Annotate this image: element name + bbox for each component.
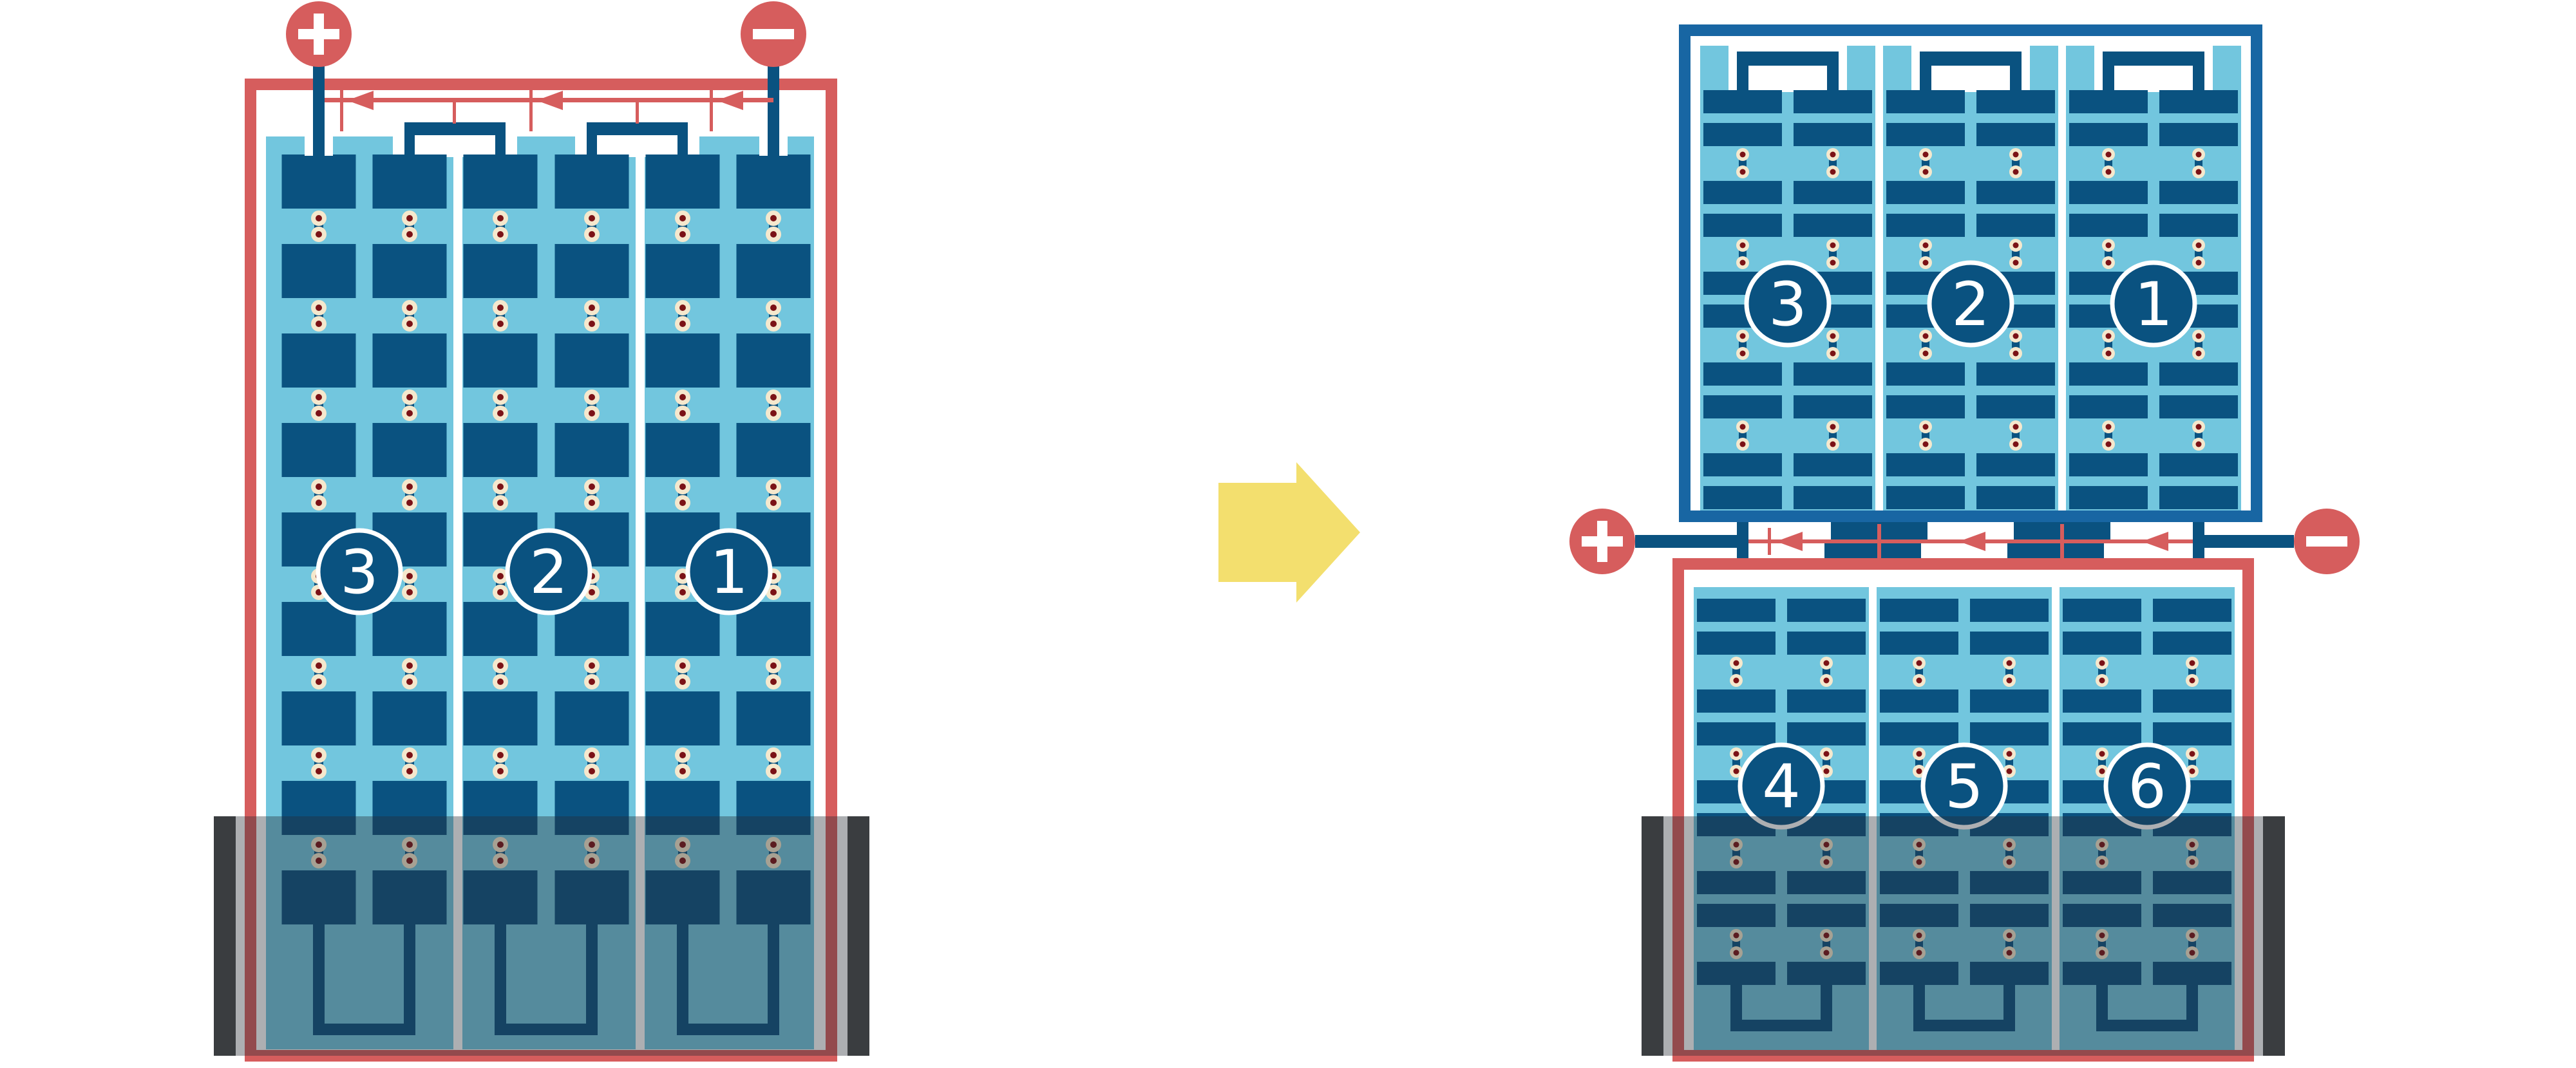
bottom-loop <box>2103 52 2204 66</box>
plate <box>1976 214 2055 237</box>
plate <box>464 423 538 477</box>
plate <box>1703 90 1782 113</box>
plate <box>373 691 447 745</box>
cell-number-badge: 6 <box>2106 745 2188 827</box>
plate <box>1970 599 2049 622</box>
plate <box>1880 722 1958 745</box>
bottom-loop <box>1920 52 2022 66</box>
plate <box>282 333 356 388</box>
plate <box>1886 123 1965 146</box>
plate <box>1703 395 1782 418</box>
plate <box>1976 90 2055 113</box>
tray-overlay <box>1642 816 2285 1056</box>
plate <box>1886 214 1965 237</box>
plate <box>282 244 356 298</box>
current-flow-arrow <box>1748 524 2193 559</box>
plate <box>2063 599 2141 622</box>
plate <box>2063 632 2141 655</box>
plate <box>737 155 811 209</box>
flow-tick <box>2060 524 2064 559</box>
battery-rewiring-diagram: 321321456 <box>0 0 2576 1068</box>
plate <box>282 155 356 209</box>
plate <box>1886 90 1965 113</box>
tray-glass <box>1642 816 2285 1056</box>
cell-number-badge: 1 <box>688 530 770 613</box>
plate <box>2159 395 2238 418</box>
flow-arrowhead-icon <box>1959 532 1985 551</box>
tray-cap <box>2263 816 2285 1056</box>
plate <box>555 244 629 298</box>
tray-overlay <box>214 816 869 1056</box>
plate <box>1880 599 1958 622</box>
plate <box>464 244 538 298</box>
plate <box>1976 123 2055 146</box>
plate <box>1970 632 2049 655</box>
plate <box>1886 453 1965 476</box>
plate <box>2159 214 2238 237</box>
tray-cap <box>848 816 869 1056</box>
plate <box>1787 689 1866 713</box>
plate <box>1703 453 1782 476</box>
plate <box>1703 362 1782 386</box>
cell-number: 2 <box>1951 270 1990 340</box>
left-battery: 321 <box>214 1 869 1056</box>
plate <box>2069 395 2148 418</box>
cell-number-badge: 3 <box>1747 263 1829 345</box>
plate <box>282 423 356 477</box>
cell-bridge <box>404 122 506 135</box>
plate <box>1886 362 1965 386</box>
plate <box>1703 214 1782 237</box>
plate <box>2153 599 2231 622</box>
plate <box>1794 123 1872 146</box>
plate <box>1787 632 1866 655</box>
plate <box>373 423 447 477</box>
plate <box>2153 632 2231 655</box>
cell-number: 1 <box>710 538 748 608</box>
bridge-drop-line <box>453 102 456 124</box>
positive-terminal-icon <box>1569 509 1635 574</box>
plate <box>1697 599 1776 622</box>
plate <box>1886 486 1965 509</box>
bridge-drop-line <box>636 102 639 124</box>
current-flow-arrow <box>325 90 773 131</box>
cell-number-badge: 3 <box>318 530 401 613</box>
plate <box>2159 181 2238 204</box>
plate <box>555 691 629 745</box>
plate <box>464 333 538 388</box>
plate <box>1703 181 1782 204</box>
plate <box>737 691 811 745</box>
plate <box>1976 453 2055 476</box>
cell-number-badge: 2 <box>507 530 590 613</box>
plate <box>2159 486 2238 509</box>
plate <box>1794 181 1872 204</box>
cell-number: 3 <box>1768 270 1807 340</box>
plate <box>1697 722 1776 745</box>
plate <box>1703 123 1782 146</box>
plate <box>1794 395 1872 418</box>
plate <box>555 423 629 477</box>
tray-cap <box>214 816 236 1056</box>
plate <box>373 155 447 209</box>
plate <box>2069 181 2148 204</box>
plate <box>2159 453 2238 476</box>
plate <box>2069 123 2148 146</box>
positive-bus-bar <box>1635 535 1743 548</box>
plate <box>1794 362 1872 386</box>
flow-arrowhead-icon <box>1776 532 1803 551</box>
cell-bridge <box>587 122 688 135</box>
terminal-post <box>768 64 779 160</box>
plate <box>646 333 720 388</box>
plate <box>2063 689 2141 713</box>
diagram-canvas: 321321456 <box>0 0 2576 1068</box>
transform-arrow-icon <box>1218 462 1360 603</box>
right-top-battery: 321 <box>1685 30 2257 559</box>
cell-number-badge: 1 <box>2112 263 2195 345</box>
cell-number: 1 <box>2134 270 2173 340</box>
plate <box>2159 123 2238 146</box>
flow-tick <box>340 90 343 131</box>
plate <box>2069 453 2148 476</box>
flow-arrowhead-icon <box>347 91 374 110</box>
negative-terminal-icon <box>741 1 806 67</box>
plate <box>1886 395 1965 418</box>
bottom-loop <box>1737 52 1839 66</box>
plate <box>373 333 447 388</box>
plate <box>555 333 629 388</box>
plate <box>2069 486 2148 509</box>
plate <box>1794 214 1872 237</box>
cell-number: 4 <box>1762 752 1801 822</box>
plate <box>1787 599 1866 622</box>
plate <box>1976 181 2055 204</box>
plate <box>1880 689 1958 713</box>
plate <box>464 602 538 656</box>
plate <box>1794 453 1872 476</box>
plate <box>1794 486 1872 509</box>
cell-number-badge: 4 <box>1740 745 1823 827</box>
plate <box>646 602 720 656</box>
tray-cap <box>1642 816 1663 1056</box>
plate <box>1787 722 1866 745</box>
plate <box>737 244 811 298</box>
plate <box>1976 362 2055 386</box>
plate <box>646 244 720 298</box>
plate <box>464 691 538 745</box>
plate <box>2063 722 2141 745</box>
negative-terminal-icon <box>2294 509 2360 574</box>
plate <box>1880 632 1958 655</box>
tray-glass <box>214 816 869 1056</box>
flow-tick <box>1768 528 1771 555</box>
cell-number: 2 <box>529 538 568 608</box>
plate <box>2153 689 2231 713</box>
plate <box>373 602 447 656</box>
plate <box>1886 181 1965 204</box>
plate <box>1703 486 1782 509</box>
plate <box>1697 632 1776 655</box>
cell-number: 3 <box>340 538 379 608</box>
plate <box>2069 362 2148 386</box>
positive-terminal-icon <box>286 1 352 67</box>
negative-bus-bar <box>2199 535 2294 548</box>
flow-arrowhead-icon <box>2142 532 2168 551</box>
flow-arrowhead-icon <box>717 91 743 110</box>
flow-arrowhead-icon <box>536 91 563 110</box>
plate <box>646 155 720 209</box>
plate <box>1794 90 1872 113</box>
plate <box>737 423 811 477</box>
cell-number: 6 <box>2128 752 2166 822</box>
cell-number: 5 <box>1945 752 1984 822</box>
cell-number-badge: 2 <box>1929 263 2012 345</box>
plate <box>646 423 720 477</box>
plate <box>2069 214 2148 237</box>
cell-number-badge: 5 <box>1923 745 2005 827</box>
plate <box>646 691 720 745</box>
terminal-post <box>313 64 325 160</box>
plate <box>2153 722 2231 745</box>
plate <box>282 691 356 745</box>
plate <box>464 155 538 209</box>
plate <box>1976 395 2055 418</box>
plate <box>1976 486 2055 509</box>
plate <box>2159 90 2238 113</box>
top-loops <box>1728 46 2213 93</box>
plate <box>1970 689 2049 713</box>
plate <box>2159 362 2238 386</box>
plate <box>1970 722 2049 745</box>
flow-tick <box>710 90 713 131</box>
flow-tick <box>1877 524 1881 559</box>
plate <box>1697 689 1776 713</box>
flow-tick <box>529 90 533 131</box>
plate <box>555 155 629 209</box>
plate <box>373 244 447 298</box>
plate <box>737 333 811 388</box>
right-bottom-battery: 456 <box>1642 540 2285 1056</box>
plate <box>2069 90 2148 113</box>
